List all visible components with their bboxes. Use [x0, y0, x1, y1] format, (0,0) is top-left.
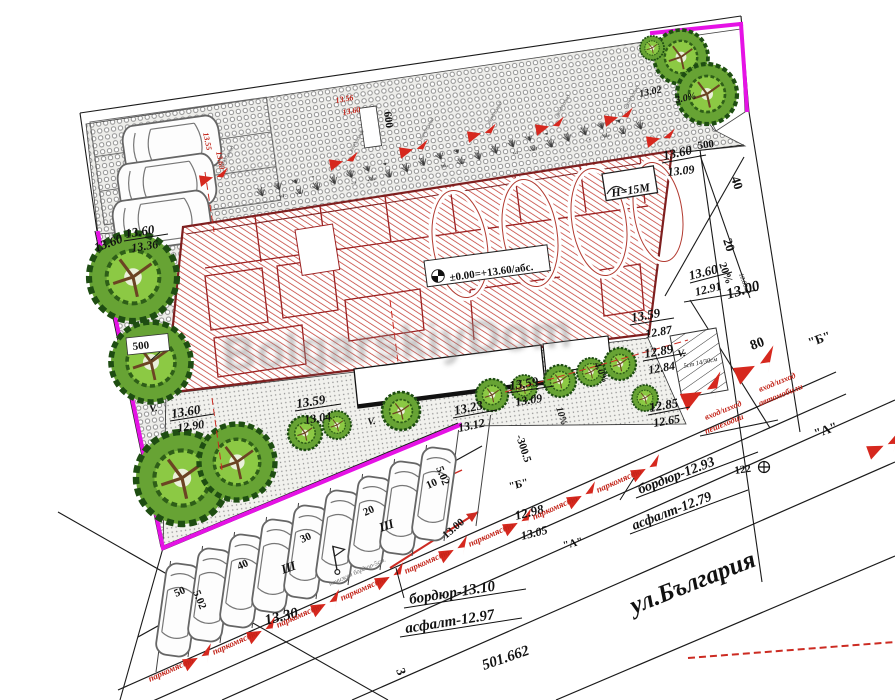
elevation-label: 13.09 [667, 162, 695, 179]
dimension-label: 20 [720, 236, 738, 253]
interior-notch [295, 224, 340, 275]
section-letter: "А" [562, 535, 584, 552]
dimension-label: 600 [381, 111, 395, 130]
tree [111, 322, 191, 402]
benchmark-icon [759, 462, 770, 473]
lawn-label: V. [367, 416, 376, 428]
street-centerline [688, 642, 895, 658]
section-letter: "Б" [806, 328, 833, 350]
edge-marker-icon [865, 431, 895, 461]
curb-elevation-label: бордюр-13.10 [408, 579, 497, 608]
section-letter: "Б" [508, 477, 530, 493]
site-plan-svg: Н=15М ±0.00=+13.60/абс. [0, 0, 895, 700]
street-name-label: ул.България [624, 546, 760, 621]
area-label: 501.662 [480, 643, 532, 674]
dimension-label: 500 [132, 339, 150, 353]
red-arrowhead [466, 512, 478, 522]
level-symbol-icon [432, 270, 445, 283]
bush [640, 36, 664, 60]
bush [382, 392, 420, 430]
asphalt-elevation-label: асфалт-12.97 [404, 607, 496, 637]
dimension-label: 40 [728, 174, 746, 191]
bush [544, 365, 576, 397]
tree [199, 424, 275, 500]
section-letter: "А" [812, 419, 840, 441]
benchmark-label: 122 [734, 463, 753, 477]
dimension-label: -300.5 [513, 433, 533, 464]
lawn-label: V. [149, 403, 158, 415]
dimension-label: 80 [748, 335, 766, 354]
site-plan-drawing: Н=15М ±0.00=+13.60/абс. [0, 0, 895, 700]
dimension-label: 500 [697, 138, 715, 152]
lawn-label: V. [677, 348, 686, 360]
elevation-label: 13.05 [519, 523, 549, 543]
